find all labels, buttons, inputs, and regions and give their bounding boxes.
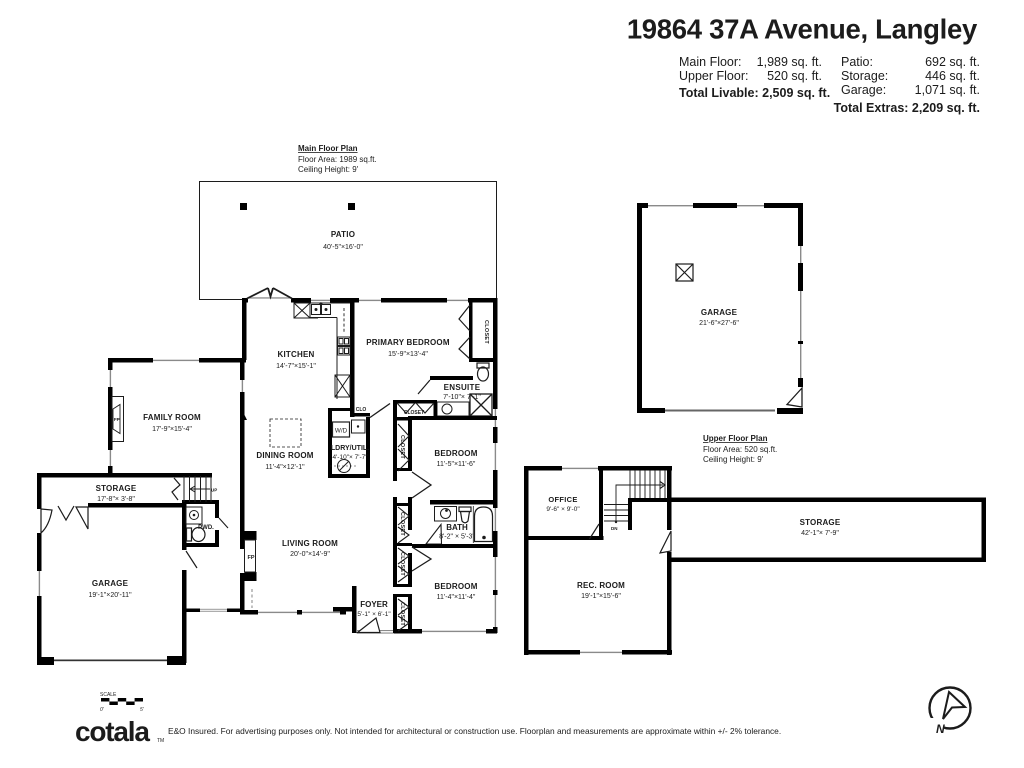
svg-text:BEDROOM: BEDROOM (434, 582, 477, 591)
svg-text:9'-6" × 9'-0": 9'-6" × 9'-0" (546, 506, 580, 513)
svg-text:PWD.: PWD. (198, 525, 214, 531)
svg-text:11'-4"×12'-1": 11'-4"×12'-1" (265, 464, 305, 471)
svg-text:Ceiling Height: 9': Ceiling Height: 9' (298, 165, 359, 174)
svg-text:STORAGE: STORAGE (96, 484, 137, 493)
svg-text:CLO: CLO (356, 407, 367, 413)
svg-text:FAMILY ROOM: FAMILY ROOM (143, 413, 201, 422)
svg-text:CLOSET: CLOSET (399, 602, 405, 626)
svg-text:BEDROOM: BEDROOM (434, 449, 477, 458)
svg-text:DN: DN (611, 526, 618, 531)
svg-text:PRIMARY BEDROOM: PRIMARY BEDROOM (366, 338, 450, 347)
svg-text:14'-7"×15'-1": 14'-7"×15'-1" (276, 363, 316, 370)
svg-text:E&O Insured. For advertising p: E&O Insured. For advertising purposes on… (168, 726, 781, 736)
svg-text:UP: UP (211, 488, 217, 493)
svg-text:FP: FP (247, 555, 254, 561)
svg-text:11'-5"×11'-6": 11'-5"×11'-6" (437, 461, 476, 468)
svg-text:REC. ROOM: REC. ROOM (577, 581, 625, 590)
svg-text:GARAGE: GARAGE (701, 308, 738, 317)
svg-text:17'-9"×15'-4": 17'-9"×15'-4" (152, 426, 192, 433)
svg-text:BATH: BATH (446, 523, 468, 532)
svg-text:PATIO: PATIO (331, 230, 355, 239)
svg-text:17'-8"× 3'-8": 17'-8"× 3'-8" (97, 496, 135, 503)
svg-text:Garage:: Garage: (841, 83, 886, 97)
svg-text:FOYER: FOYER (360, 600, 388, 609)
svg-text:CLOSET: CLOSET (404, 410, 424, 416)
svg-text:Floor Area: 1989 sq.ft.: Floor Area: 1989 sq.ft. (298, 155, 377, 164)
svg-text:DINING ROOM: DINING ROOM (256, 451, 313, 460)
svg-text:19'-1"×15'-6": 19'-1"×15'-6" (581, 593, 621, 600)
svg-text:520 sq. ft.: 520 sq. ft. (767, 69, 822, 83)
svg-text:N: N (936, 722, 945, 736)
svg-text:4'-10"× 7'-7": 4'-10"× 7'-7" (332, 454, 368, 461)
svg-text:CLOSET: CLOSET (399, 435, 405, 459)
svg-text:KITCHEN: KITCHEN (278, 350, 315, 359)
svg-text:Main Floor:: Main Floor: (679, 55, 742, 69)
svg-text:ENSUITE: ENSUITE (444, 383, 481, 392)
svg-text:CLOSET: CLOSET (399, 552, 405, 576)
svg-text:CLOSET: CLOSET (399, 512, 405, 536)
svg-text:OFFICE: OFFICE (548, 495, 577, 504)
svg-text:Patio:: Patio: (841, 55, 873, 69)
svg-text:42'-1"× 7'-9": 42'-1"× 7'-9" (801, 530, 839, 537)
svg-text:TM: TM (157, 738, 164, 744)
svg-text:19'-1"×20'-11": 19'-1"×20'-11" (88, 592, 132, 599)
svg-text:LIVING ROOM: LIVING ROOM (282, 539, 338, 548)
svg-text:40'-5"×16'-0": 40'-5"×16'-0" (323, 244, 363, 251)
svg-text:21'-6"×27'-6": 21'-6"×27'-6" (699, 320, 739, 327)
svg-text:SCALE: SCALE (100, 692, 117, 698)
svg-text:W/D: W/D (335, 428, 348, 435)
svg-text:5'-1" × 6'-1": 5'-1" × 6'-1" (357, 611, 391, 618)
svg-text:STORAGE: STORAGE (800, 518, 841, 527)
svg-text:Floor Area: 520 sq.ft.: Floor Area: 520 sq.ft. (703, 445, 777, 454)
svg-text:Total Livable: 2,509 sq. ft.: Total Livable: 2,509 sq. ft. (679, 86, 830, 100)
svg-text:LDRY/UTIL.: LDRY/UTIL. (331, 445, 369, 452)
svg-text:11'-4"×11'-4": 11'-4"×11'-4" (437, 594, 476, 601)
svg-text:Total Extras: 2,209 sq. ft.: Total Extras: 2,209 sq. ft. (834, 101, 980, 115)
svg-text:692 sq. ft.: 692 sq. ft. (925, 55, 980, 69)
svg-text:Main Floor Plan: Main Floor Plan (298, 144, 358, 153)
svg-text:19864 37A Avenue, Langley: 19864 37A Avenue, Langley (627, 14, 978, 45)
svg-text:1,989 sq. ft.: 1,989 sq. ft. (757, 55, 822, 69)
svg-text:15'-9"×13'-4": 15'-9"×13'-4" (388, 351, 428, 358)
svg-text:20'-0"×14'-9": 20'-0"×14'-9" (290, 551, 330, 558)
svg-text:cotala: cotala (75, 716, 150, 747)
svg-text:GARAGE: GARAGE (92, 579, 129, 588)
svg-text:Upper Floor:: Upper Floor: (679, 69, 748, 83)
svg-text:8'-2" × 5'-3": 8'-2" × 5'-3" (439, 534, 475, 541)
svg-text:Upper Floor Plan: Upper Floor Plan (703, 434, 768, 443)
svg-text:Storage:: Storage: (841, 69, 888, 83)
svg-text:CLOSET: CLOSET (483, 320, 489, 344)
svg-text:1,071 sq. ft.: 1,071 sq. ft. (915, 83, 980, 97)
svg-text:446 sq. ft.: 446 sq. ft. (925, 69, 980, 83)
svg-text:Ceiling Height: 9': Ceiling Height: 9' (703, 455, 764, 464)
svg-text:FP: FP (114, 417, 120, 422)
